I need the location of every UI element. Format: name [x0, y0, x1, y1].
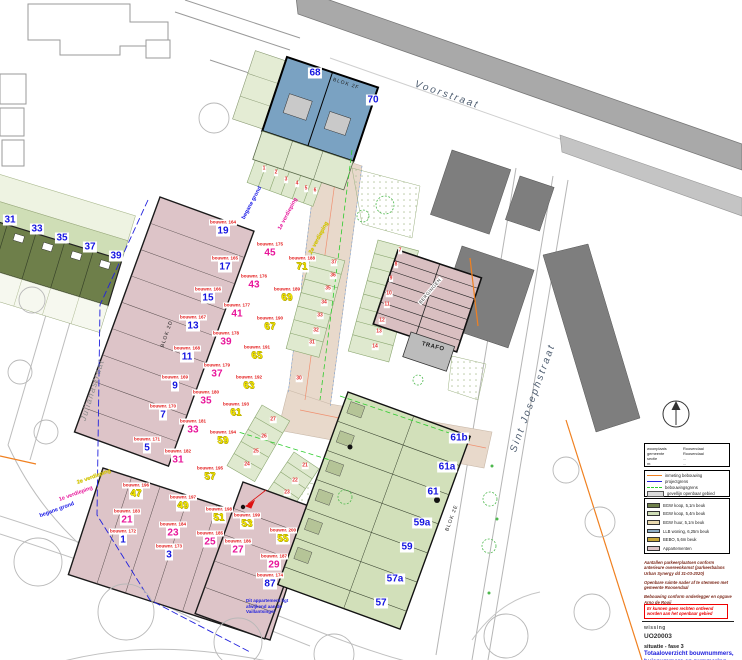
legend-line-item: gevellijn openbaar gebied	[647, 491, 727, 497]
warning-box: Er kunnen geen rechten ontleend worden a…	[644, 604, 728, 619]
legend-line-label: inmeting bebouwing	[665, 473, 702, 478]
site-plan-canvas: VoorstraatSint JosephstraatJulianastraat…	[0, 0, 742, 660]
legend-lines-box: inmeting bebouwing projectgrens bebouwin…	[644, 470, 730, 497]
titleblock-divider	[642, 621, 734, 622]
legend-fill-label: Appartementen	[663, 546, 692, 551]
legend-line-symbol	[647, 475, 662, 476]
parking-number: 3	[284, 177, 288, 183]
drawing-notes: Aantallen parkeerplaatsen conform anteri…	[644, 560, 732, 609]
parking-number: 31	[309, 340, 316, 346]
drawing-note: Openbare ruimte nader af te stemmen met …	[644, 580, 732, 591]
parking-number: 13	[376, 329, 383, 335]
legend-fill-label: BGW koop, 5,4m beuk	[663, 511, 705, 516]
project-code: UO20003	[644, 633, 672, 640]
parking-number: 7	[398, 248, 402, 254]
parking-number: 1	[262, 166, 266, 172]
parking-number: 35	[325, 286, 332, 292]
legend-line-symbol	[647, 481, 662, 482]
cadastre-key: nr.	[647, 461, 683, 466]
parking-number: 21	[302, 463, 309, 469]
parking-number: 11	[384, 302, 390, 308]
legend-line-symbol	[647, 491, 664, 497]
drawing-note: Aantallen parkeerplaatsen conform anteri…	[644, 560, 732, 576]
legend-fill-item: BEBO, 5,6m beuk	[647, 535, 727, 544]
legend-fill-item: BGW koop, 5,1m beuk	[647, 501, 727, 510]
legend-fills-box: BGW koop, 5,1m beuk BGW koop, 5,4m beuk …	[644, 498, 730, 554]
legend-fill-item: LLB woning, 6,25m beuk	[647, 527, 727, 536]
legend-fill-label: BGW koop, 5,1m beuk	[663, 503, 705, 508]
parking-number: 24	[244, 462, 251, 468]
apartment-note: Dit appartement ligt afwijkend aan de Va…	[246, 598, 288, 615]
legend-color-swatch	[647, 546, 660, 551]
parking-number: 12	[379, 318, 386, 324]
parking-number: 34	[321, 300, 328, 306]
legend-color-swatch	[647, 537, 660, 542]
legend-panel: woonplaats Roosendaal gemeente Roosendaa…	[628, 390, 742, 660]
apartment-note-line: Vaillantsingel	[246, 609, 288, 615]
parking-number: 8	[394, 262, 398, 268]
parking-number: 26	[261, 434, 268, 440]
cadastre-box: woonplaats Roosendaal gemeente Roosendaa…	[644, 443, 730, 467]
legend-fill-label: BGW huur, 5,1m beuk	[663, 520, 704, 525]
legend-line-label: projectgrens	[665, 479, 688, 484]
legend-color-swatch	[647, 529, 660, 534]
parking-number: 30	[296, 376, 303, 382]
parking-number: 36	[330, 273, 337, 279]
parking-number: 14	[372, 344, 379, 350]
parking-number: 32	[313, 328, 320, 334]
legend-color-swatch	[647, 520, 660, 525]
parking-number: 9	[389, 276, 393, 282]
drawing-phase: situatie - fase 3	[644, 644, 684, 650]
legend-color-swatch	[647, 511, 660, 516]
legend-fill-item: BGW koop, 5,4m beuk	[647, 510, 727, 519]
parking-number: 4	[295, 181, 299, 187]
legend-fill-item: Appartementen	[647, 544, 727, 553]
legend-fill-label: BEBO, 5,6m beuk	[663, 537, 697, 542]
legend-line-label: bebouwingsgrens	[665, 485, 698, 490]
legend-fill-item: BGW huur, 5,1m beuk	[647, 518, 727, 527]
parking-number: 22	[292, 478, 299, 484]
parking-number: 5	[304, 186, 308, 192]
parking-number: 27	[270, 417, 277, 423]
parking-number: 37	[331, 260, 338, 266]
parking-number: 10	[386, 291, 393, 297]
parking-number: 33	[317, 313, 324, 319]
cadastre-value: ...	[683, 461, 686, 466]
parking-number: 25	[253, 449, 260, 455]
legend-fill-label: LLB woning, 6,25m beuk	[663, 529, 709, 534]
parking-number: 2	[274, 170, 278, 176]
legend-color-swatch	[647, 503, 660, 508]
parking-number: 23	[284, 490, 291, 496]
firm-name: wissing	[644, 625, 666, 631]
sheet-title: Totaaloverzicht bouwnummers,	[644, 651, 734, 657]
cadastre-row: nr. ...	[647, 461, 727, 466]
legend-line-label: gevellijn openbaar gebied	[667, 491, 715, 496]
legend-line-symbol	[647, 487, 662, 488]
parking-number: 6	[313, 188, 317, 194]
apartment-note-line: Dit appartement ligt	[246, 598, 288, 604]
